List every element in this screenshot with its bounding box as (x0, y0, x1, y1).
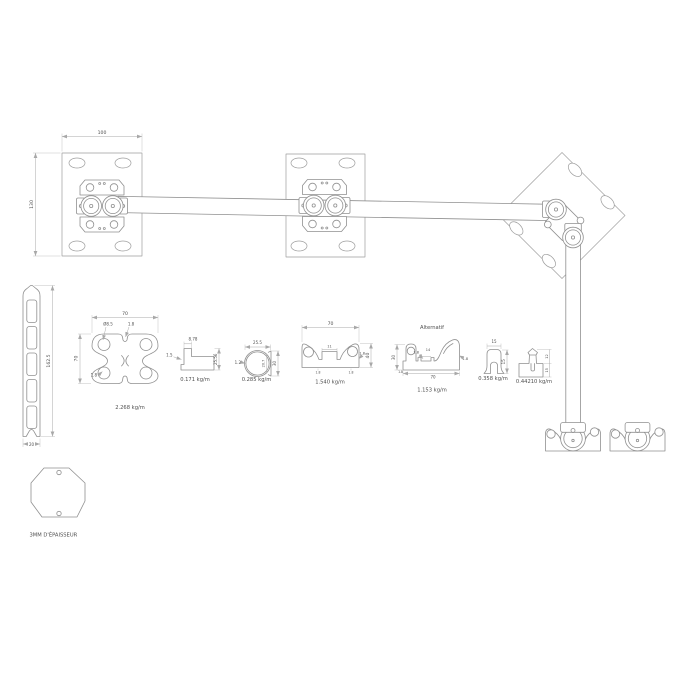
dim-uclip-height: 15 (501, 359, 506, 365)
dim-alternatif-foot: 1.8 (398, 370, 403, 374)
weight-tube: 0.285 kg/m (242, 377, 272, 383)
dim-angle-height: 25.56 (213, 353, 218, 365)
dim-butterfly-hole: Ø8.5 (103, 322, 113, 327)
gusset-note: 3MM D'ÉPAISSEUR (30, 531, 78, 539)
dim-tube-width: 25.5 (253, 340, 262, 345)
alternatif-title: Alternatif (420, 325, 444, 331)
dim-plate-width: 100 (98, 130, 107, 136)
dim-tube-height: 30 (272, 361, 277, 367)
dim-rail-wall: 1.8 (359, 352, 365, 356)
plate-hole (339, 158, 355, 168)
vertical-tube (566, 232, 581, 428)
dim-rail-height: 40 (365, 353, 371, 359)
dim-uclip-width: 15 (491, 339, 497, 344)
dim-plate-height: 130 (29, 200, 35, 209)
dim-tube-inner: 20.7 (261, 360, 265, 368)
dim-rail-foot-right: 1.8 (349, 371, 354, 375)
dim-angle-width: 8.78 (189, 337, 198, 342)
dim-butterfly-wall-bottom: 1.8 (91, 373, 98, 378)
dim-rail-slot: 11 (327, 345, 331, 349)
dim-alternatif-height: 30 (391, 355, 396, 361)
dim-butterfly-width: 70 (122, 311, 128, 317)
plate-hole (69, 158, 85, 168)
dim-post-width: 20 (29, 442, 35, 447)
dim-tube-wall: 1.2 (235, 360, 242, 365)
weight-uclip: 0.358 kg/m (478, 376, 508, 382)
dim-hook-upper: 12 (545, 354, 549, 358)
plate-hole (69, 241, 85, 251)
dim-butterfly-height: 70 (74, 356, 80, 362)
plate-hole (291, 241, 307, 251)
weight-alternatif: 1.153 kg/m (417, 388, 447, 394)
weight-angle: 0.171 kg/m (180, 377, 210, 383)
dim-hook-lower: 15 (545, 368, 549, 372)
plate-hole (339, 241, 355, 251)
dim-rail-foot-left: 1.8 (316, 371, 321, 375)
dim-butterfly-wall-top: 1.8 (128, 322, 135, 327)
dim-alternatif-claw-wall: 1.8 (463, 357, 469, 361)
dim-rail-width: 70 (328, 321, 334, 327)
dim-alternatif-width: 70 (430, 375, 436, 380)
weight-hook: 0.44210 kg/m (516, 379, 552, 385)
plate-hole (115, 241, 131, 251)
cad-sheet: 100 130 162.5 20 70 70 Ø8.5 1.8 (0, 0, 691, 691)
plate-hole (115, 158, 131, 168)
dim-angle-thickness: 1.5 (166, 353, 173, 358)
dim-post-height: 162.5 (46, 354, 52, 367)
plate-hole (291, 158, 307, 168)
cad-drawing: 100 130 162.5 20 70 70 Ø8.5 1.8 (0, 0, 691, 691)
weight-rail: 1.540 kg/m (315, 380, 345, 386)
weight-butterfly: 2.268 kg/m (115, 405, 145, 411)
dim-alternatif-slot: 14 (426, 348, 431, 352)
dim-alternatif-lip-wall: 1.8 (413, 351, 419, 355)
